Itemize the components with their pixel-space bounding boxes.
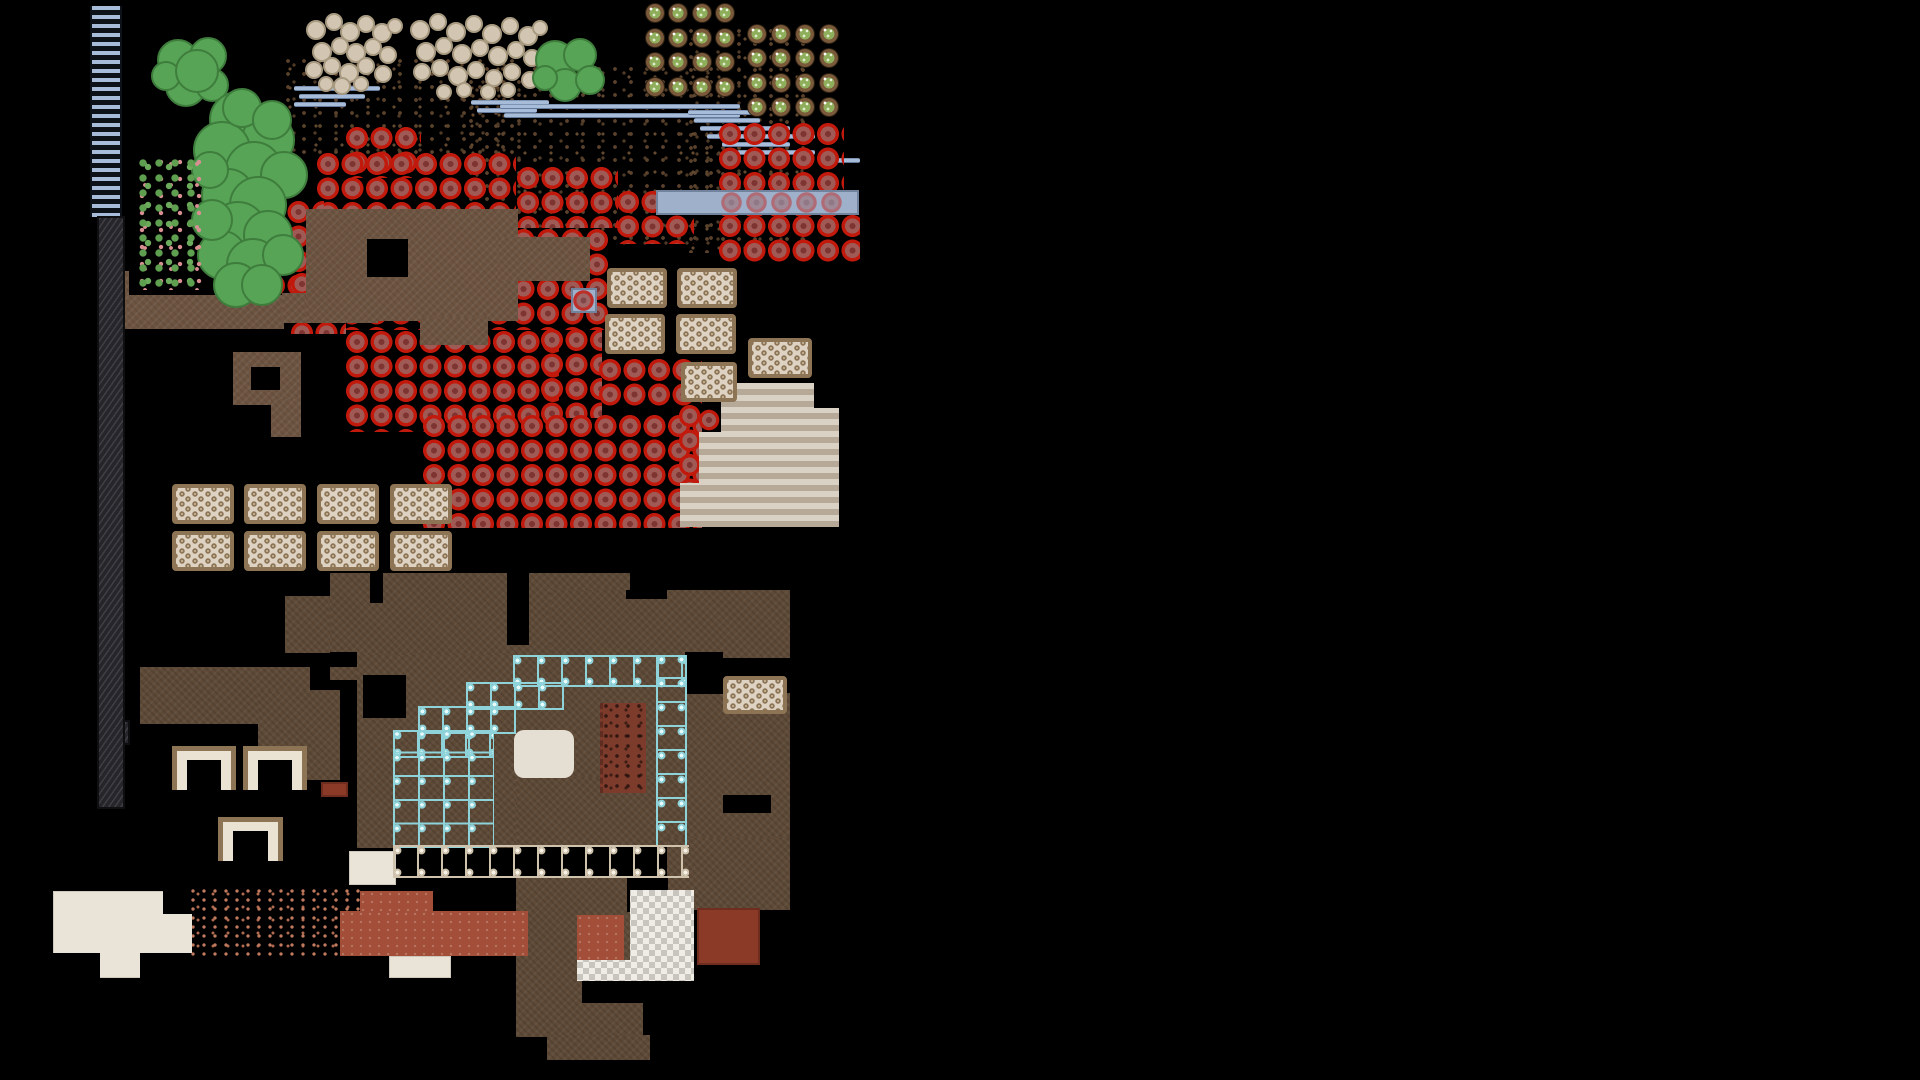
dirt-path <box>306 209 518 321</box>
dead-shrub-cluster-blob <box>467 61 485 79</box>
dead-shrub-cluster-blob <box>318 76 334 92</box>
planted-sapling <box>693 53 711 71</box>
dead-shrub-cluster-blob <box>480 84 496 100</box>
storage-crate <box>681 362 737 402</box>
dead-shrub-cluster-blob <box>387 18 403 34</box>
soil-field <box>685 693 790 840</box>
planted-sapling <box>716 78 734 96</box>
planted-sapling <box>796 74 814 92</box>
dead-shrub-cluster-blob <box>456 82 472 98</box>
workshop-u-hole <box>233 831 268 861</box>
planted-sapling <box>669 29 687 47</box>
soil-gap <box>330 652 357 667</box>
storage-crate <box>317 531 379 571</box>
cream-landing <box>389 956 451 978</box>
planted-sapling <box>772 25 790 43</box>
soil-gap <box>370 573 383 603</box>
scaffold-built <box>393 845 689 878</box>
brick-fragment <box>321 782 348 797</box>
storage-crate <box>244 484 306 524</box>
brick-floor <box>360 891 433 913</box>
dead-shrub-cluster-blob <box>500 82 516 98</box>
planted-sapling <box>820 49 838 67</box>
workshop-u <box>218 817 283 861</box>
storage-crate <box>390 531 452 571</box>
planted-sapling <box>820 74 838 92</box>
berry-bush-field <box>718 214 860 264</box>
path-gap <box>367 239 408 277</box>
dead-shrub-cluster-blob <box>374 65 392 83</box>
dead-shrub-cluster-blob <box>465 15 483 33</box>
soil-gap <box>723 795 771 813</box>
dead-shrub-cluster-blob <box>410 20 430 40</box>
bush-under-bridge <box>770 191 793 214</box>
dead-shrub-cluster-blob <box>501 17 519 35</box>
brick-floor <box>577 915 624 961</box>
planted-sapling <box>716 4 734 22</box>
soil-gap <box>582 978 643 1003</box>
dead-shrub-cluster-blob <box>431 59 449 77</box>
brick-floor-rough <box>600 703 646 793</box>
workshop-u <box>243 746 307 790</box>
bush-under-bridge <box>720 191 743 214</box>
dead-shrub-cluster-blob <box>488 46 508 66</box>
planted-sapling <box>693 78 711 96</box>
storage-crate <box>676 314 736 354</box>
berry-bush-field <box>540 328 602 418</box>
storage-crate <box>390 484 452 524</box>
salmon-speckle-field <box>190 888 362 956</box>
workshop-u-hole <box>187 760 221 790</box>
dead-shrub-cluster-blob <box>471 39 489 57</box>
dead-shrub-cluster <box>298 8 408 100</box>
brick-floor-dark <box>697 908 760 965</box>
workshop-u <box>172 746 236 790</box>
planted-sapling <box>820 25 838 43</box>
planted-sapling <box>669 4 687 22</box>
tree-canopy-large-blob <box>252 100 292 140</box>
storage-crate <box>723 676 787 714</box>
planted-sapling <box>646 4 664 22</box>
planted-sapling <box>820 98 838 116</box>
berry-bush <box>572 289 595 312</box>
cream-landing <box>349 851 396 885</box>
dead-shrub-cluster-blob <box>357 57 375 75</box>
water-ripple <box>688 110 758 115</box>
berry-bush <box>697 408 721 432</box>
dead-shrub-cluster-blob <box>333 77 351 95</box>
bush-under-bridge <box>795 191 818 214</box>
soil-field <box>550 590 790 658</box>
dead-shrub-cluster-blob <box>503 63 521 81</box>
planted-sapling <box>748 25 766 43</box>
dead-shrub-cluster-blob <box>435 37 453 55</box>
dead-shrub-cluster-blob <box>305 61 323 79</box>
berry-bush-field <box>422 414 702 528</box>
planted-sapling <box>716 29 734 47</box>
planted-sapling <box>693 4 711 22</box>
planted-sapling <box>796 98 814 116</box>
dead-shrub-cluster-blob <box>306 20 326 40</box>
smoothed-wall-bump <box>123 720 130 745</box>
planted-sapling <box>646 29 664 47</box>
planted-sapling <box>748 74 766 92</box>
storage-crate <box>677 268 737 308</box>
dead-shrub-cluster-blob <box>436 84 452 100</box>
storage-crate <box>244 531 306 571</box>
cream-building-floor <box>53 891 193 978</box>
dead-shrub-cluster-blob <box>413 63 431 81</box>
flowering-bush <box>138 158 202 290</box>
scaffold-blueprint-grid <box>393 730 494 848</box>
planted-sapling <box>796 25 814 43</box>
waterfall-column <box>90 6 122 217</box>
soil-gap <box>363 675 406 718</box>
bush-under-bridge <box>745 191 768 214</box>
dead-shrub-cluster-blob <box>379 46 397 64</box>
soil-field <box>547 1035 650 1060</box>
dead-shrub-cluster-blob <box>532 20 548 36</box>
bush-under-bridge <box>820 191 843 214</box>
storage-crate <box>172 484 234 524</box>
storage-crate <box>605 314 665 354</box>
tree-canopy-blob <box>575 65 605 95</box>
dirt-path <box>498 237 590 281</box>
planted-sapling <box>646 78 664 96</box>
dead-shrub-cluster <box>404 10 548 102</box>
cream-floor-blob <box>514 730 574 778</box>
dirt-path <box>271 399 301 437</box>
storage-crate <box>607 268 667 308</box>
soil-gap <box>685 652 723 694</box>
dead-shrub-cluster-blob <box>452 44 472 64</box>
storage-crate <box>748 338 812 378</box>
stair-platform <box>680 383 839 527</box>
workshop-u-hole <box>258 760 292 790</box>
soil-gap <box>507 573 529 645</box>
planted-sapling <box>772 98 790 116</box>
tree-canopy-large-blob <box>241 264 283 306</box>
smoothed-wall-column <box>97 216 125 809</box>
dead-shrub-cluster-blob <box>353 76 369 92</box>
storage-crate <box>317 484 379 524</box>
dead-shrub-cluster-blob <box>416 42 436 62</box>
brick-floor <box>340 911 528 956</box>
planted-sapling <box>693 29 711 47</box>
storage-crate <box>172 531 234 571</box>
tree-canopy <box>533 38 613 106</box>
dirt-path <box>420 317 488 345</box>
soil-gap <box>626 590 667 599</box>
dead-shrub-cluster-blob <box>429 13 447 31</box>
path-gap <box>251 367 280 390</box>
planted-sapling <box>772 74 790 92</box>
scaffold-blueprint <box>656 655 687 847</box>
berry-bush-field <box>516 166 618 228</box>
game-map-viewport[interactable] <box>0 0 1920 1080</box>
tree-canopy-blob <box>532 65 558 91</box>
planted-sapling <box>748 98 766 116</box>
